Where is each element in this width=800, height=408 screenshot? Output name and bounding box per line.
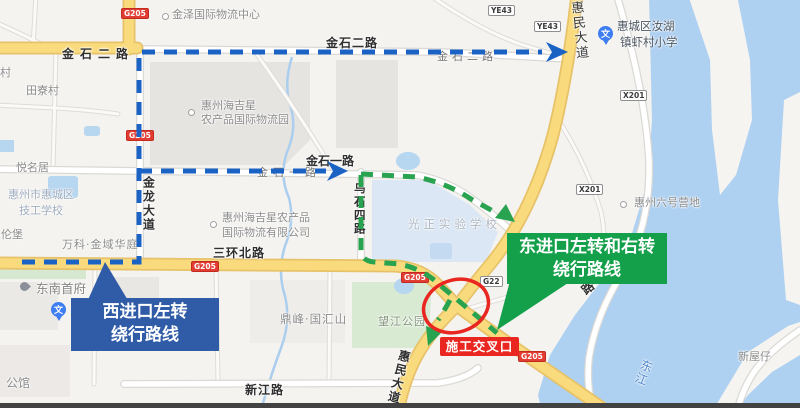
callout-east-detour: 东进口左转和右转 绕行路线 [507, 233, 667, 284]
callout-east-pointer [497, 277, 577, 330]
construction-intersection-label: 施工交叉口 [440, 337, 519, 356]
callout-east-line1: 东进口左转和右转 [507, 236, 667, 259]
callout-west-line2: 绕行路线 [71, 324, 219, 347]
callout-west-pointer [87, 262, 129, 302]
route-west-arrow-icon [546, 42, 568, 62]
route-west-arrow-icon [327, 161, 348, 181]
image-bottom-border [0, 403, 800, 408]
route-east-detour [361, 174, 515, 346]
route-east-arrow-icon [495, 204, 515, 222]
callout-east-line2: 绕行路线 [507, 259, 667, 282]
detour-map: 金泽国际物流中心 金石二路 金石二路 金石二路 惠民大道 村 田寮村 惠州海吉星… [0, 0, 800, 408]
route-west-detour [22, 42, 568, 262]
callout-west-line1: 西进口左转 [71, 301, 219, 324]
callout-west-detour: 西进口左转 绕行路线 [71, 298, 219, 351]
